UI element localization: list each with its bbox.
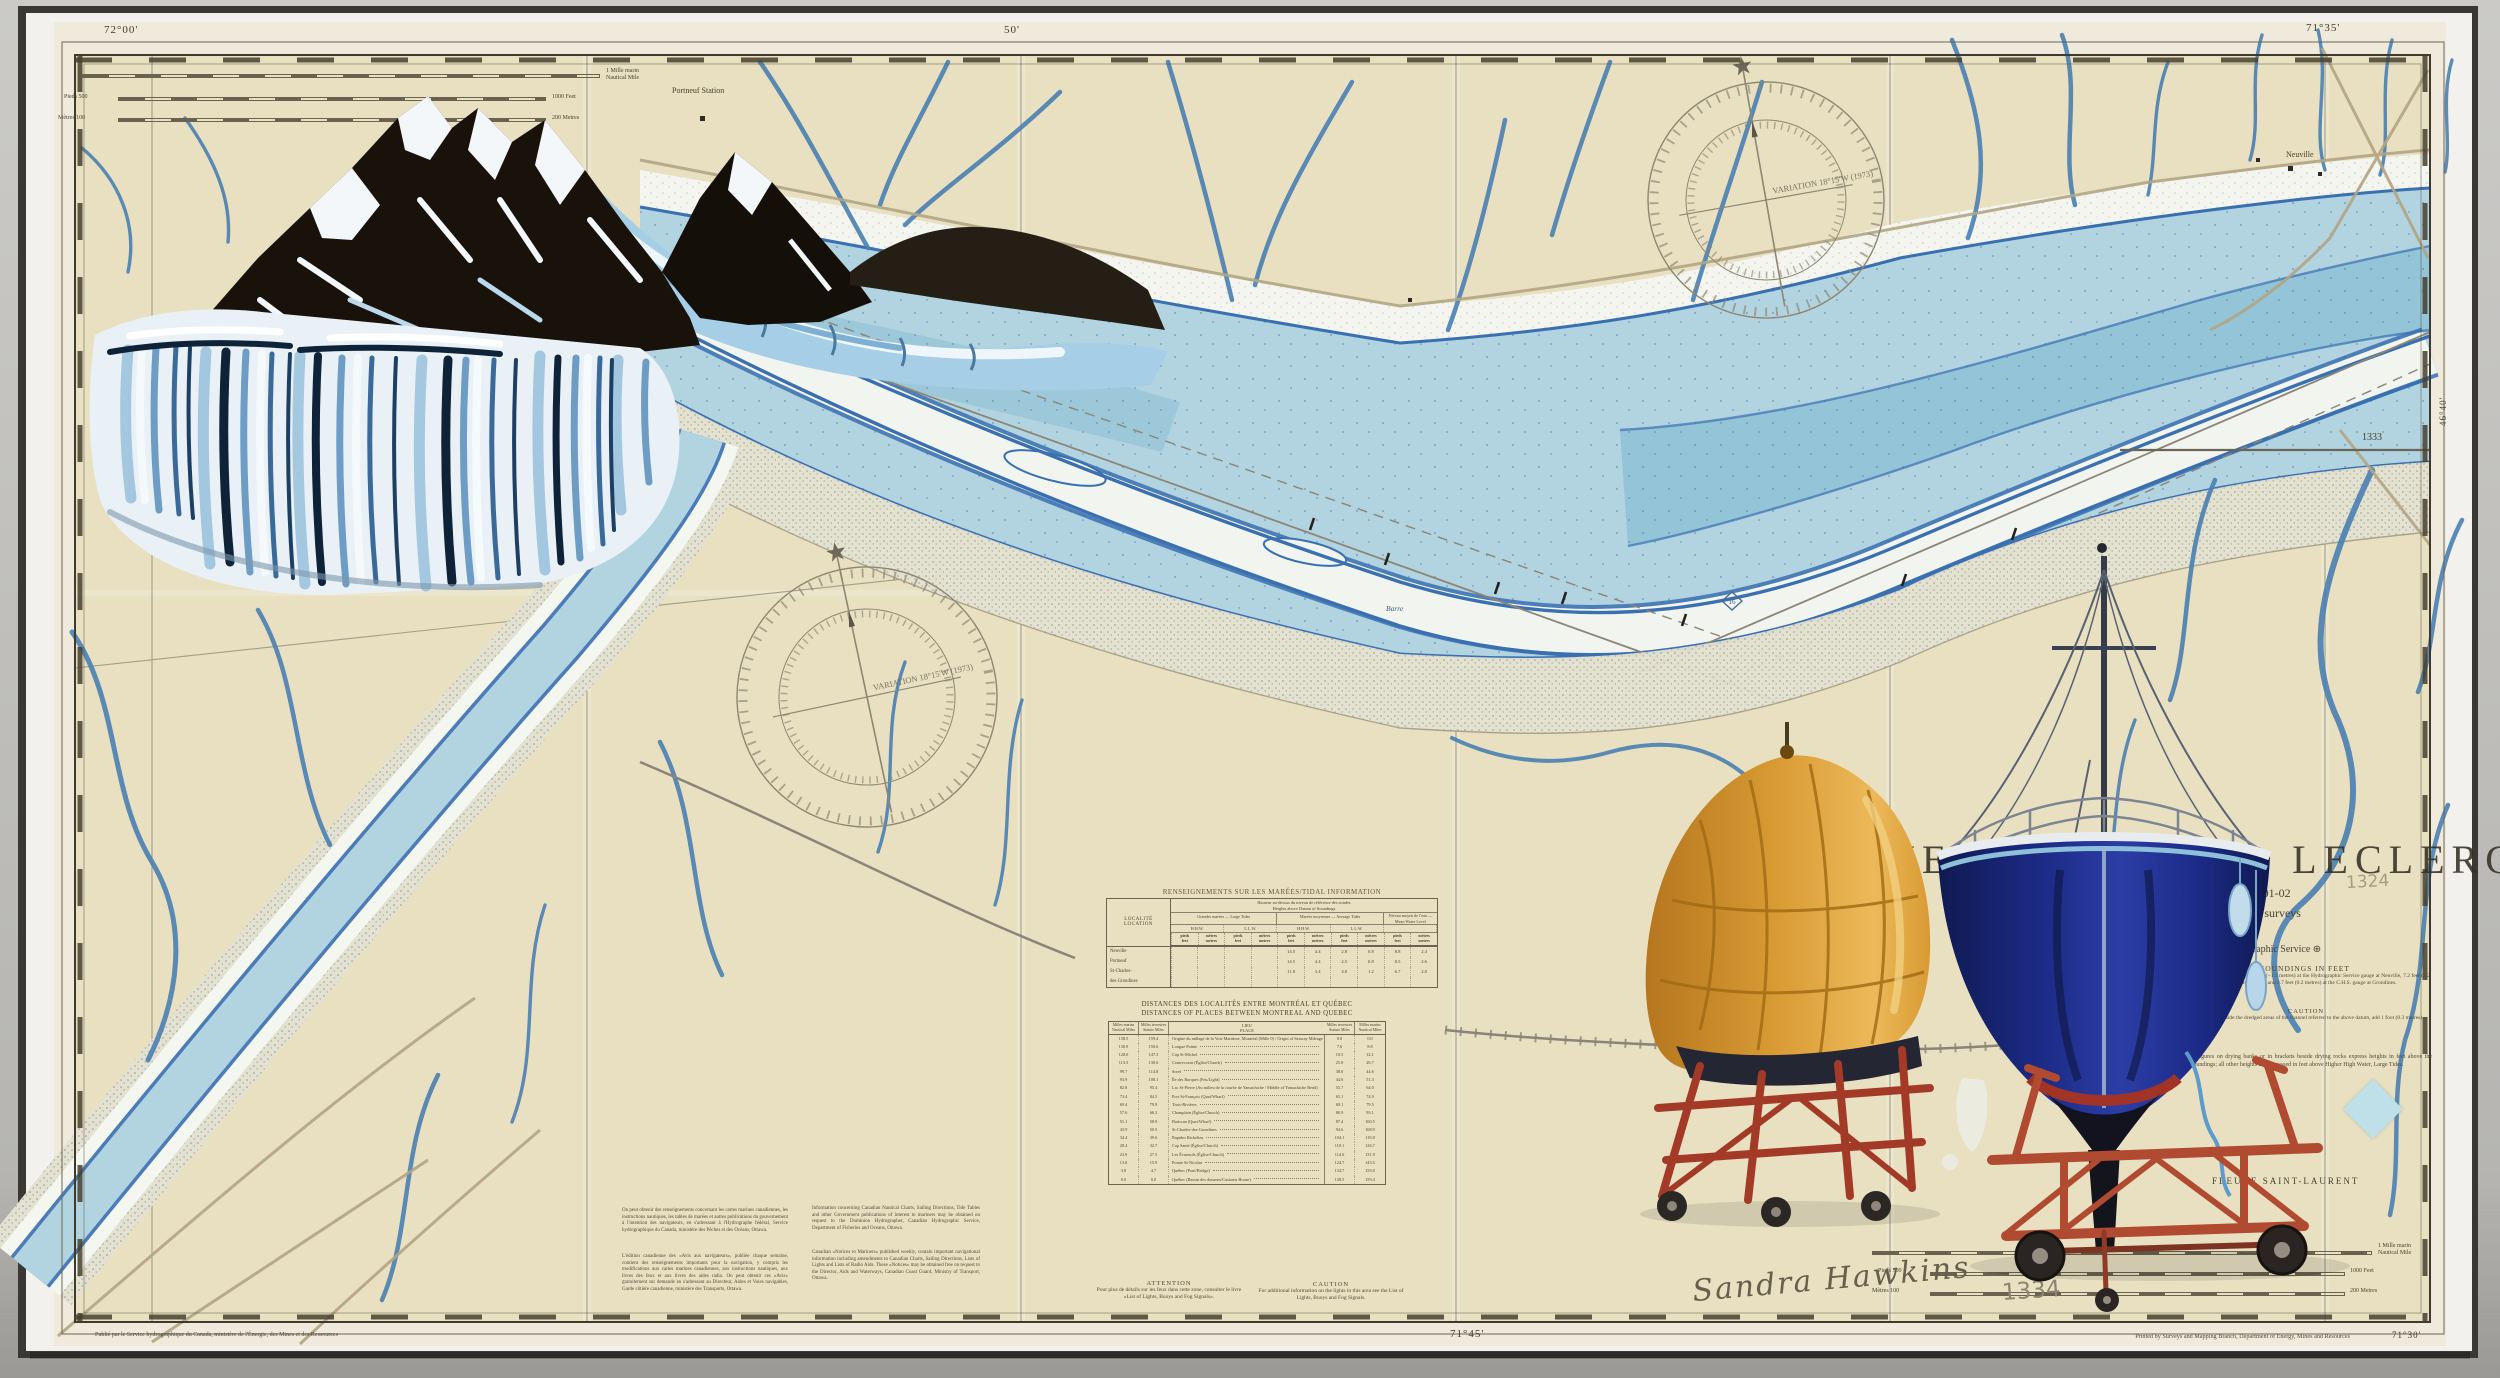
painted-artwork xyxy=(0,0,2500,1378)
framed-chart-artwork-photo: 16 xyxy=(0,0,2500,1378)
blue-rope xyxy=(2186,1052,2230,1196)
glacier-painting xyxy=(90,96,1168,595)
paint-smear xyxy=(1956,1078,1987,1152)
fender xyxy=(2229,884,2251,936)
wrapped-boat-painting xyxy=(1640,722,1940,1227)
fender xyxy=(2246,962,2266,1010)
sailboat-painting xyxy=(1938,543,2350,1312)
